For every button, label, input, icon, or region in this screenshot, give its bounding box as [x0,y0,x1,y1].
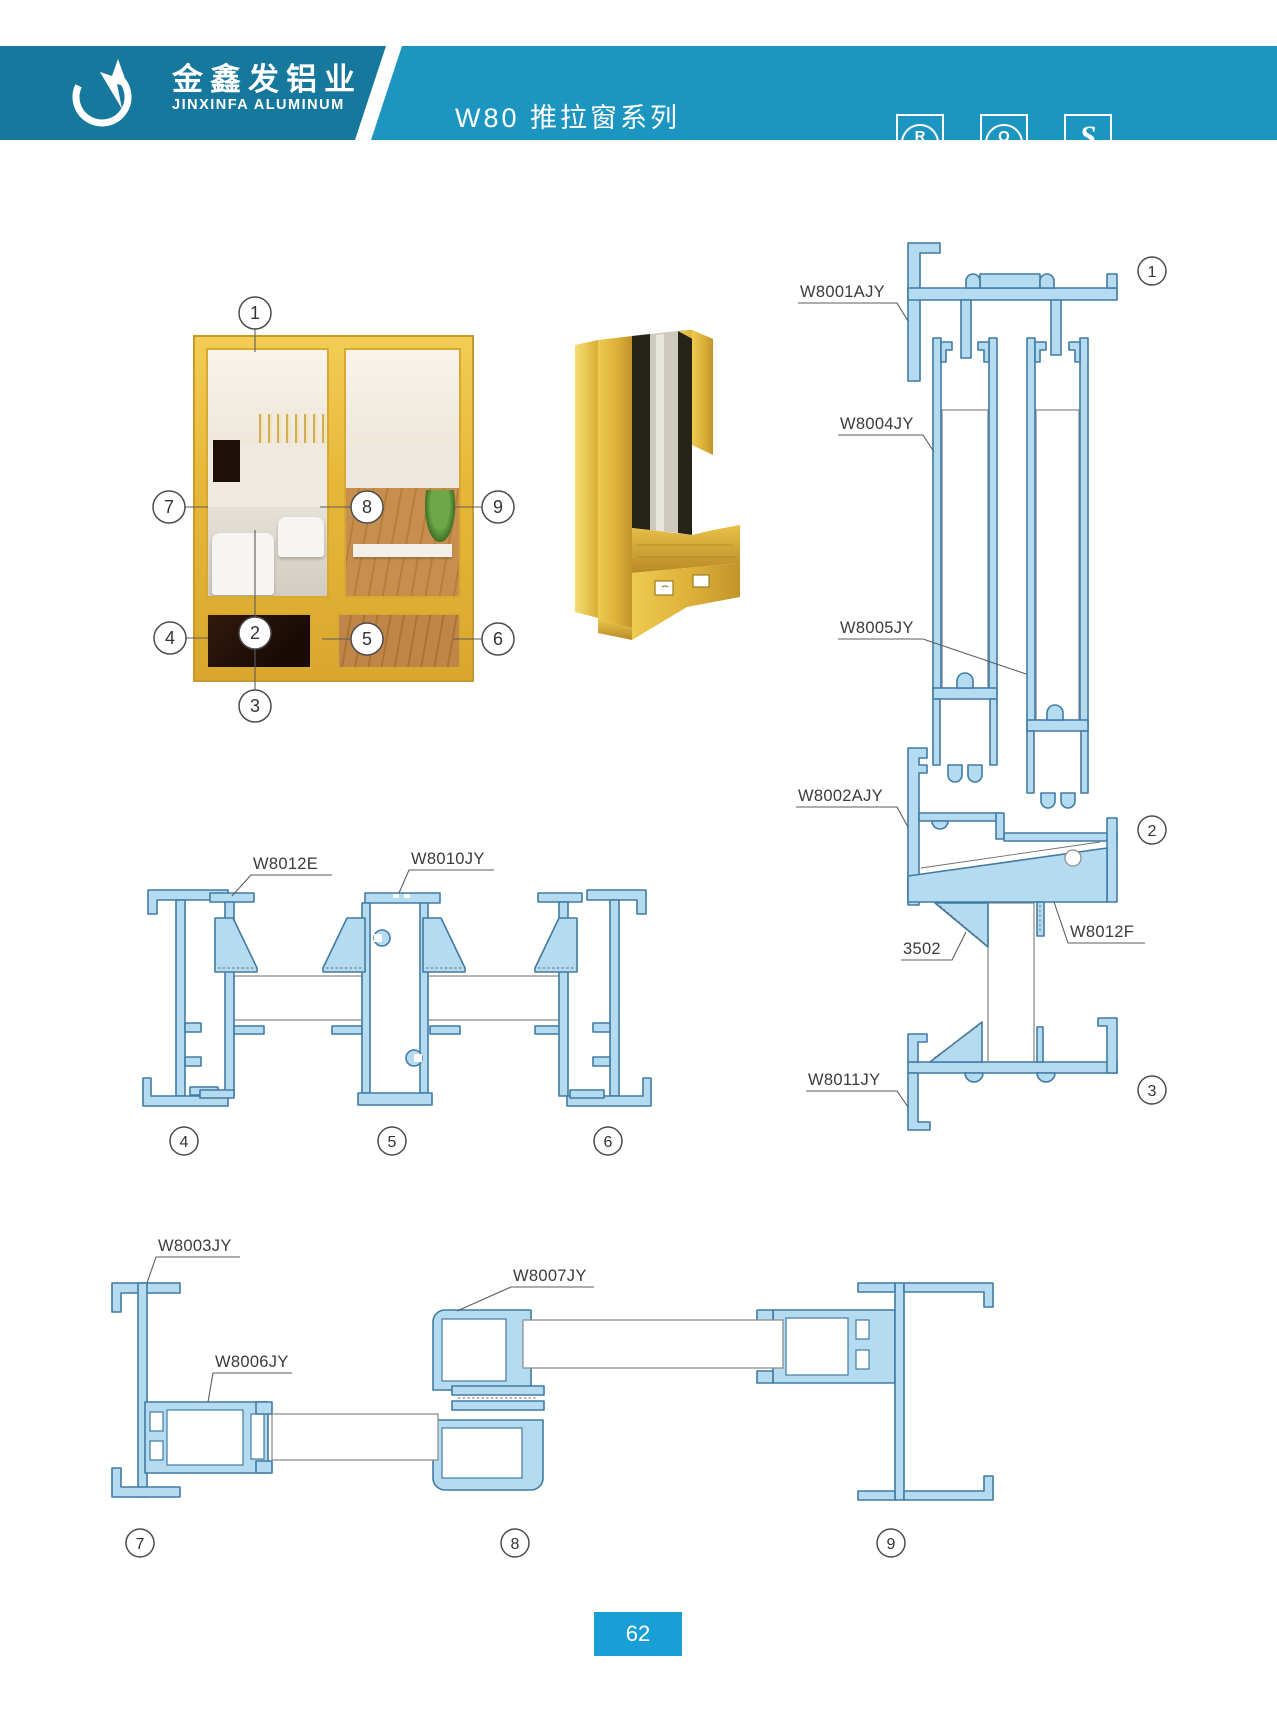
svg-text:W8012F: W8012F [1070,923,1134,941]
svg-text:1: 1 [1148,264,1157,281]
svg-text:W8005JY: W8005JY [840,619,914,637]
svg-text:4: 4 [180,1134,189,1151]
callout-sec-8: 8 [501,1529,529,1557]
svg-text:1: 1 [250,303,260,323]
svg-text:W8004JY: W8004JY [840,415,914,433]
svg-text:9: 9 [887,1536,896,1553]
svg-text:W8002AJY: W8002AJY [798,787,883,805]
label-w8011jy: W8011JY [806,1071,908,1107]
callout-5: 5 [351,623,383,655]
callout-3: 3 [239,690,271,722]
svg-text:W8011JY: W8011JY [808,1071,880,1089]
callout-sec-6: 6 [594,1127,622,1155]
callout-2: 2 [239,617,271,649]
svg-text:5: 5 [388,1134,397,1151]
label-w8003jy: W8003JY [147,1237,240,1283]
svg-text:W8003JY: W8003JY [158,1237,232,1255]
callout-sec-2: 2 [1138,816,1166,844]
callout-1: 1 [239,297,271,329]
svg-text:7: 7 [136,1536,145,1553]
label-w8012f: W8012F [1054,902,1145,943]
callout-sec-9: 9 [877,1529,905,1557]
svg-text:W8001AJY: W8001AJY [800,283,885,301]
section-vertical: W8001AJY W8004JY W8005JY W8002AJY 3502 W… [796,243,1166,1130]
label-w8002ajy: W8002AJY [796,787,908,827]
callout-sec-4: 4 [170,1127,198,1155]
svg-text:8: 8 [511,1536,520,1553]
svg-text:W8006JY: W8006JY [215,1353,289,1371]
callout-sec-3: 3 [1138,1076,1166,1104]
svg-text:3: 3 [250,696,260,716]
page-number: 62 [626,1621,650,1647]
svg-text:W8012E: W8012E [253,855,318,873]
svg-text:2: 2 [1148,823,1157,840]
photo-callout-lines [185,329,482,690]
label-w8004jy: W8004JY [838,415,934,452]
callout-9: 9 [482,491,514,523]
callout-7: 7 [153,491,185,523]
svg-text:3: 3 [1148,1083,1157,1100]
callout-sec-5: 5 [378,1127,406,1155]
technical-drawings: 1 7 8 9 4 2 5 6 3 [0,0,1277,1721]
label-w8007jy: W8007JY [457,1267,594,1311]
svg-text:8: 8 [362,497,372,517]
section-horizontal-mid: W8012E W8010JY 4 5 6 [143,850,651,1155]
label-w8010jy: W8010JY [399,850,494,893]
svg-text:6: 6 [604,1134,613,1151]
catalog-page: 金鑫发铝业 JINXINFA ALUMINUM W80 推拉窗系列 R CQM … [0,0,1277,1721]
callout-8: 8 [351,491,383,523]
svg-text:9: 9 [493,497,503,517]
svg-text:7: 7 [164,497,174,517]
svg-text:3502: 3502 [903,940,941,958]
svg-text:5: 5 [362,629,372,649]
svg-text:W8007JY: W8007JY [513,1267,587,1285]
page-number-badge: 62 [594,1612,682,1656]
svg-text:2: 2 [250,623,260,643]
label-w8012e: W8012E [232,855,332,896]
label-w8001ajy: W8001AJY [798,283,908,321]
svg-text:4: 4 [165,628,175,648]
svg-text:W8010JY: W8010JY [411,850,485,868]
callout-6: 6 [482,623,514,655]
label-w8006jy: W8006JY [208,1353,292,1402]
svg-text:6: 6 [493,629,503,649]
label-3502: 3502 [901,932,966,960]
callout-4: 4 [154,622,186,654]
callout-sec-1: 1 [1138,257,1166,285]
section-horizontal-bottom: W8003JY W8006JY W8007JY 7 8 9 [112,1237,993,1557]
callout-sec-7: 7 [126,1529,154,1557]
